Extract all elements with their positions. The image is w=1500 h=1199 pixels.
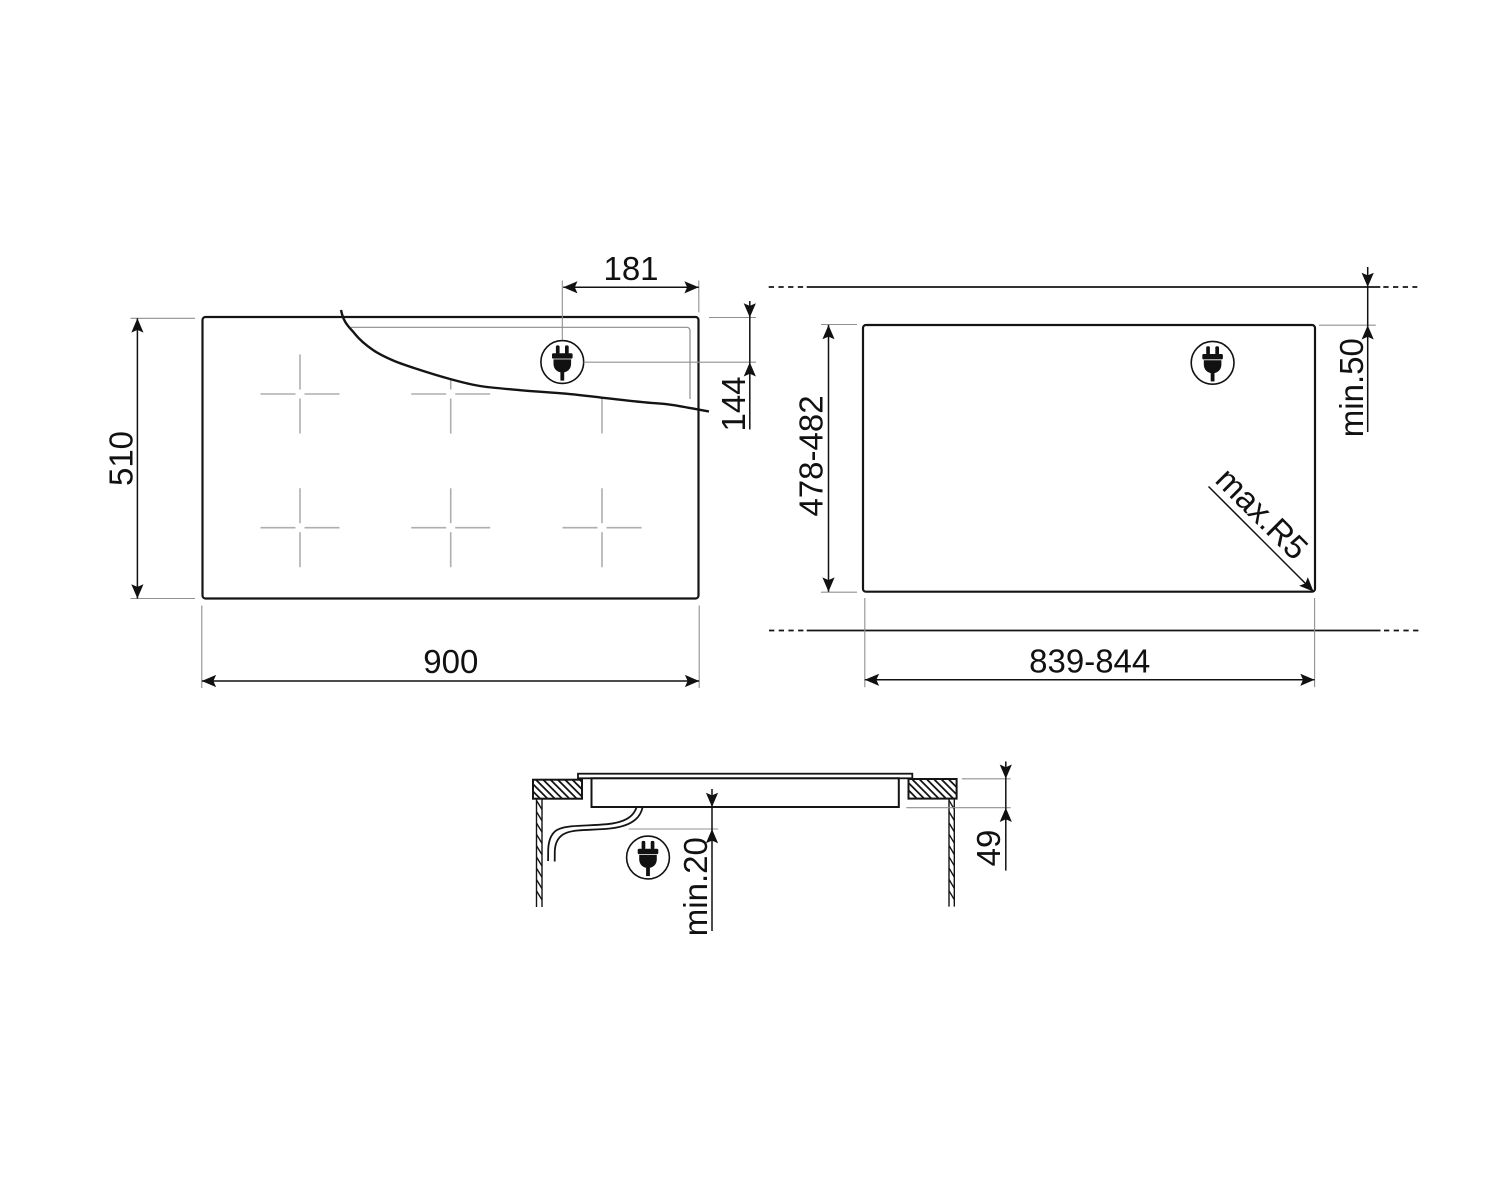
svg-text:min.50: min.50: [1333, 338, 1370, 437]
svg-text:min.20: min.20: [677, 837, 714, 936]
svg-text:478-482: 478-482: [793, 395, 830, 516]
svg-text:900: 900: [423, 643, 478, 680]
svg-text:510: 510: [103, 431, 140, 486]
svg-text:144: 144: [715, 376, 752, 431]
svg-text:181: 181: [603, 250, 658, 287]
svg-text:839-844: 839-844: [1029, 642, 1150, 679]
svg-text:49: 49: [970, 830, 1007, 867]
svg-text:max.R5: max.R5: [1209, 460, 1316, 567]
